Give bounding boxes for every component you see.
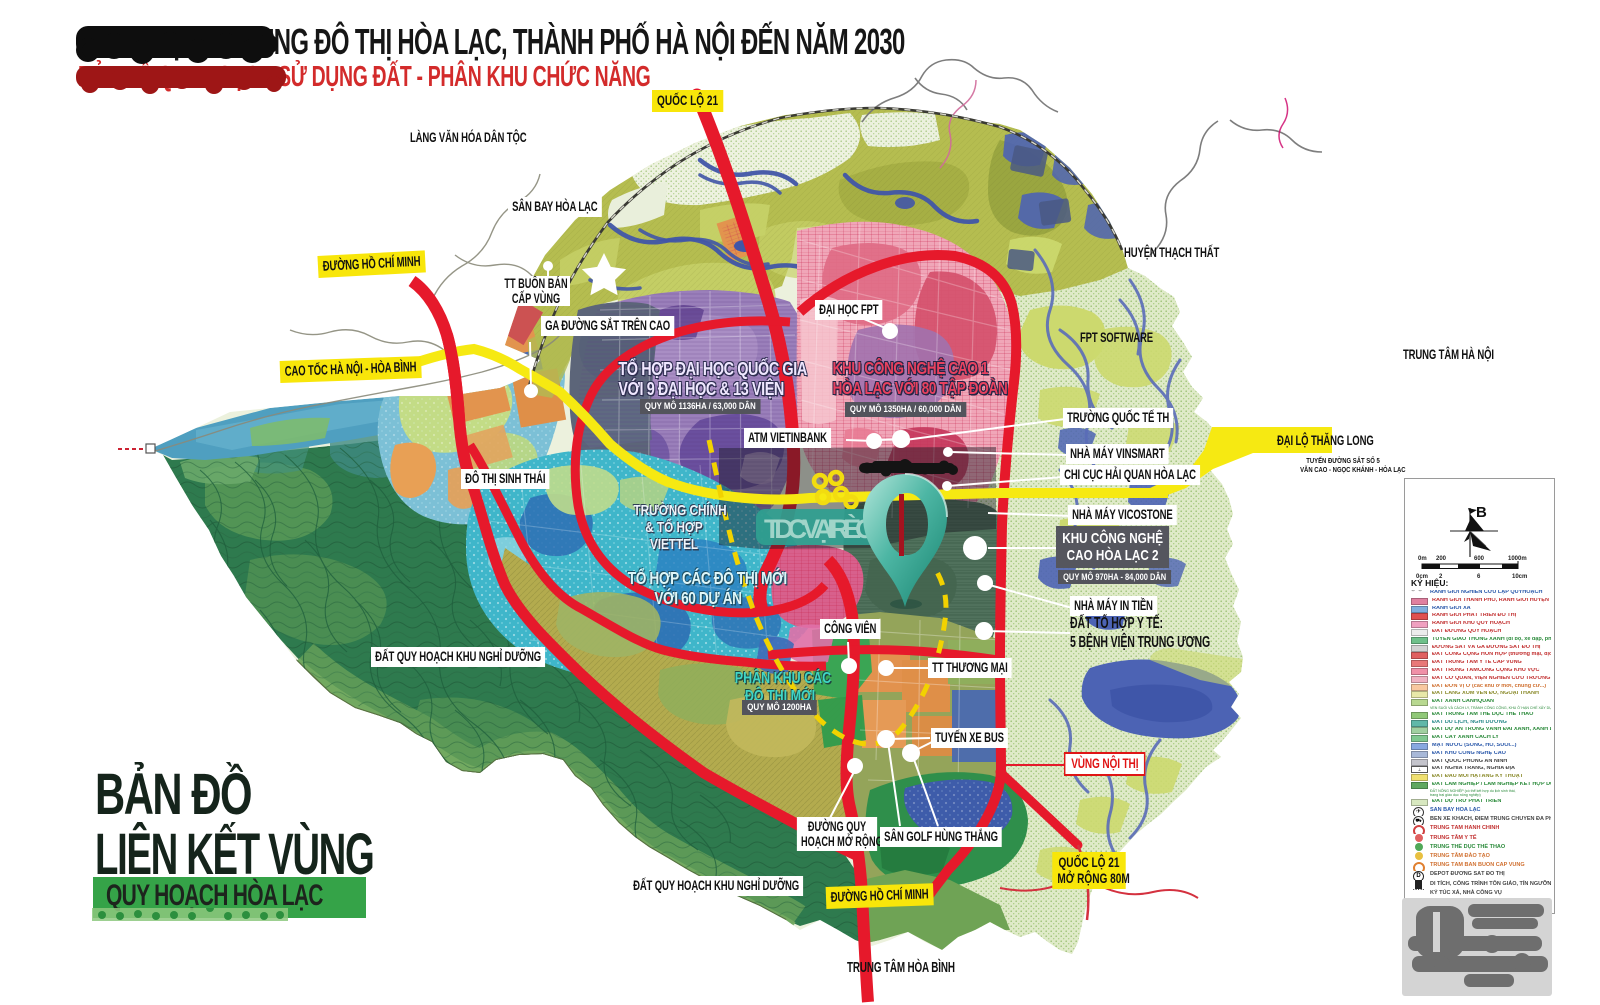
svg-text:200: 200 <box>1436 556 1447 562</box>
svg-text:600: 600 <box>1474 556 1485 562</box>
svg-text:1000m: 1000m <box>1508 556 1527 562</box>
svg-text:10cm: 10cm <box>1512 574 1527 579</box>
svg-text:TDC VẠI RÈO: TDC VẠI RÈO <box>764 513 876 544</box>
svg-text:6: 6 <box>1477 574 1481 579</box>
svg-text:0m: 0m <box>1418 556 1427 562</box>
svg-text:B: B <box>1476 504 1487 521</box>
